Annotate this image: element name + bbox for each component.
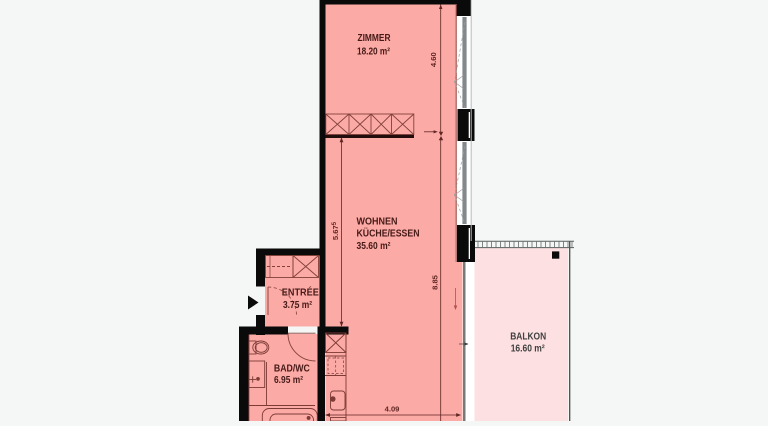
svg-text:6.95 m²: 6.95 m² bbox=[274, 374, 303, 386]
svg-text:4.60: 4.60 bbox=[429, 52, 438, 67]
svg-text:3.75 m²: 3.75 m² bbox=[283, 299, 312, 311]
svg-text:BAD/WC: BAD/WC bbox=[274, 362, 310, 374]
svg-text:WOHNEN: WOHNEN bbox=[357, 215, 398, 227]
svg-text:18.20 m²: 18.20 m² bbox=[357, 46, 390, 58]
svg-text:4.09: 4.09 bbox=[385, 405, 400, 414]
svg-text:8.85: 8.85 bbox=[431, 274, 440, 290]
svg-text:ZIMMER: ZIMMER bbox=[358, 32, 391, 44]
svg-text:35.60 m²: 35.60 m² bbox=[357, 240, 391, 252]
svg-text:16.60 m²: 16.60 m² bbox=[511, 342, 545, 354]
svg-text:BALKON: BALKON bbox=[510, 331, 546, 343]
svg-text:ENTRÉE: ENTRÉE bbox=[282, 285, 319, 298]
svg-text:KÜCHE/ESSEN: KÜCHE/ESSEN bbox=[357, 226, 420, 239]
